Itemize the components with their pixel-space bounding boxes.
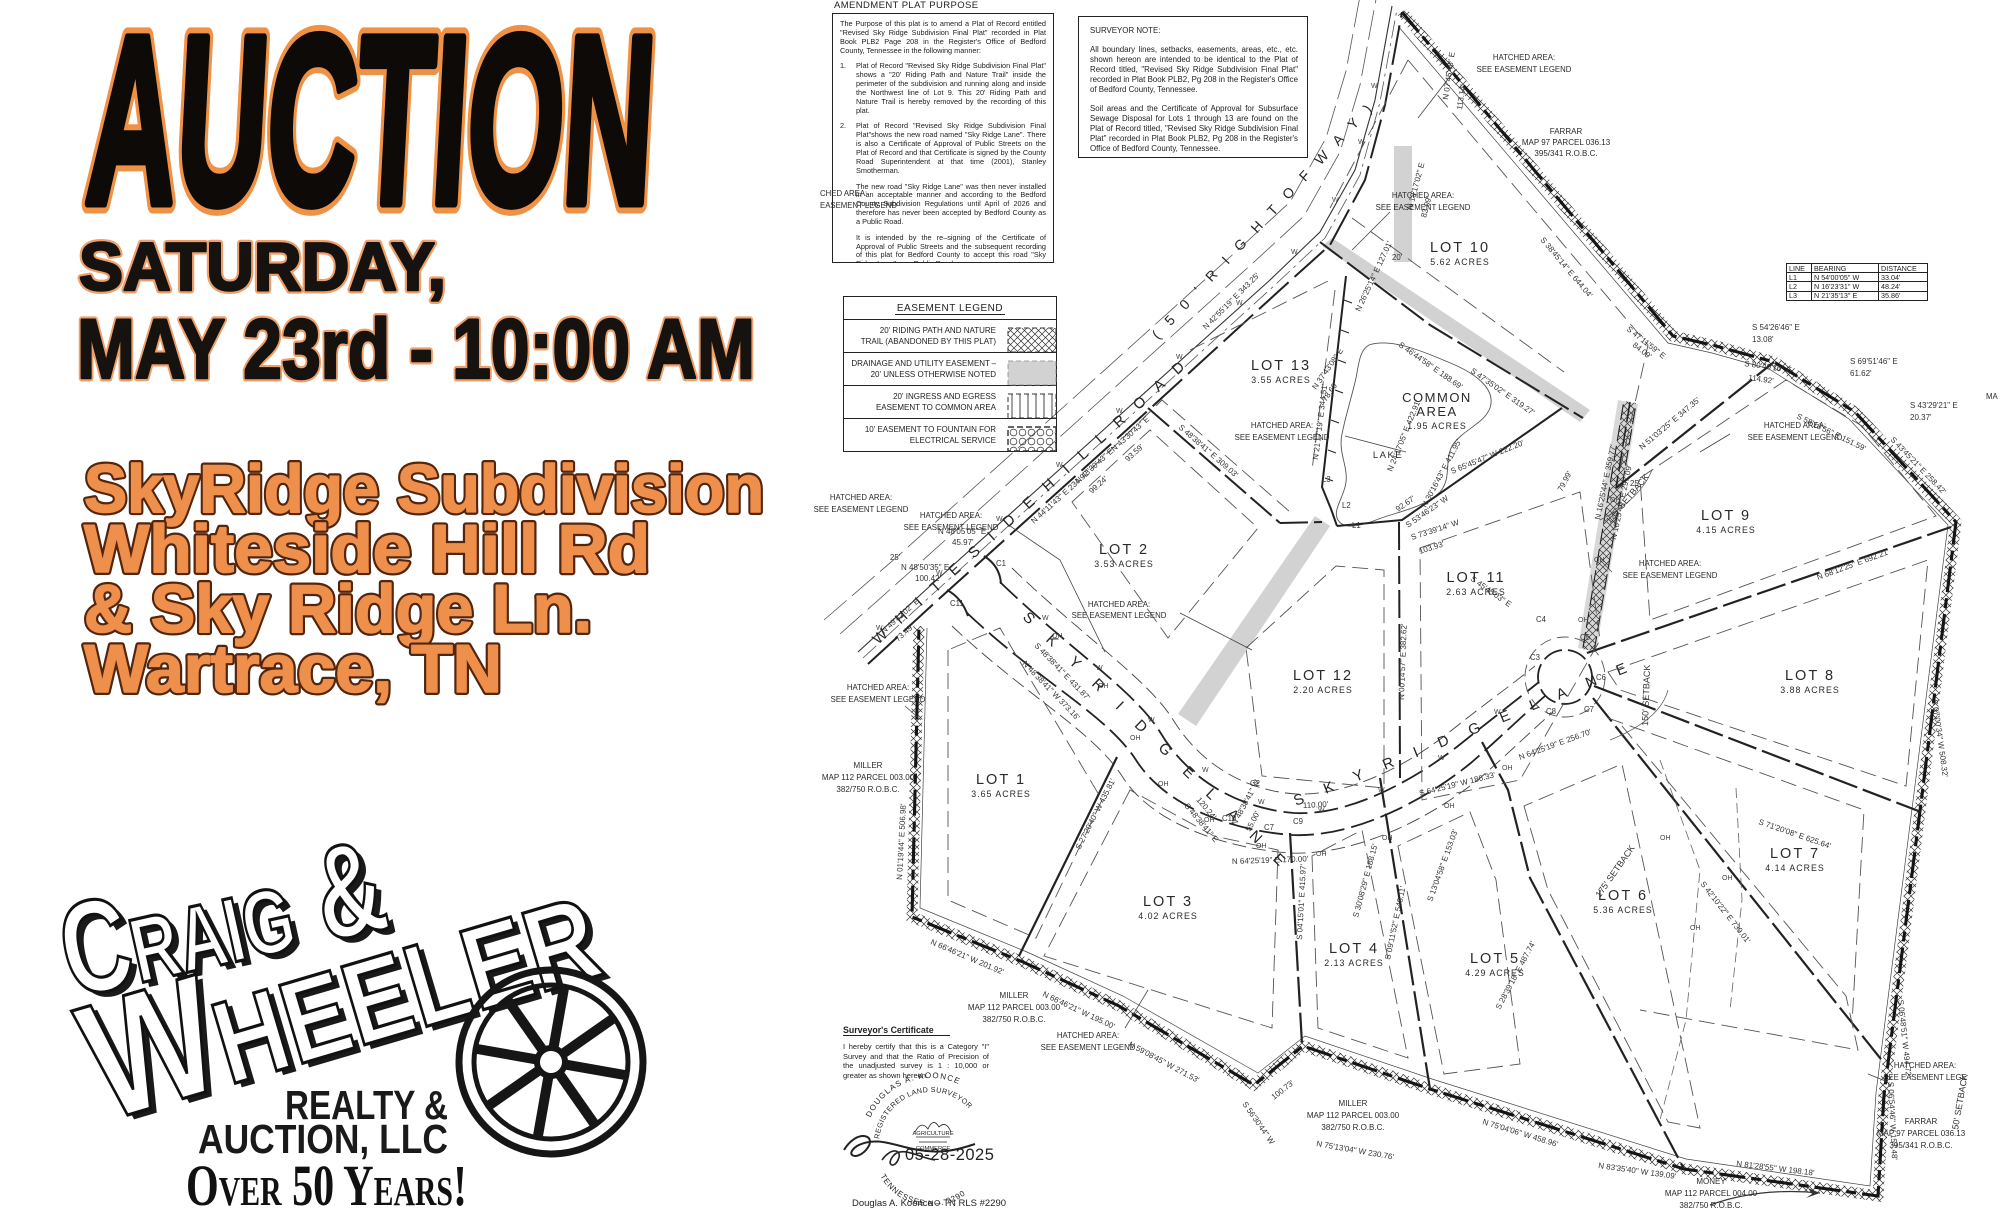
svg-text:MA: MA (1986, 392, 1998, 401)
svg-text:MAP 97 PARCEL 036.13: MAP 97 PARCEL 036.13 (1522, 138, 1611, 147)
svg-text:79.99': 79.99' (1556, 469, 1574, 493)
svg-text:05-28-2025: 05-28-2025 (905, 1146, 994, 1164)
svg-text:S 64'25'19" W 186.33': S 64'25'19" W 186.33' (1418, 770, 1496, 798)
svg-text:S 43'29'21" E: S 43'29'21" E (1910, 401, 1958, 410)
svg-text:S 69'51'46" E: S 69'51'46" E (1850, 357, 1898, 366)
svg-text:LOT 9: LOT 9 (1701, 508, 1751, 524)
svg-text:100.73': 100.73' (1270, 1078, 1296, 1101)
svg-text:MAP 112 PARCEL 003.00: MAP 112 PARCEL 003.00 (968, 1003, 1061, 1012)
svg-text:HATCHED AREA:: HATCHED AREA: (1057, 1031, 1119, 1040)
svg-text:150' SETBACK: 150' SETBACK (1640, 665, 1652, 727)
svg-text:61.62': 61.62' (1850, 369, 1872, 378)
svg-text:HATCHED AREA:: HATCHED AREA: (830, 493, 892, 502)
svg-text:C2: C2 (1250, 779, 1260, 788)
svg-text:S 27'20'40" W 435.81': S 27'20'40" W 435.81' (1074, 777, 1118, 851)
svg-text:S 06'54'46" W 157.48': S 06'54'46" W 157.48' (1886, 1082, 1899, 1161)
svg-text:AGRICULTURE: AGRICULTURE (912, 1131, 953, 1137)
svg-text:C10: C10 (1222, 814, 1237, 823)
svg-text:OH: OH (1660, 835, 1671, 842)
svg-text:LOT 13: LOT 13 (1251, 358, 1311, 374)
svg-text:S 30'08'29" E 188.15': S 30'08'29" E 188.15' (1351, 842, 1379, 918)
svg-text:4.02 ACRES: 4.02 ACRES (1138, 911, 1197, 921)
svg-text:C11: C11 (950, 599, 964, 608)
svg-text:MAP 112 PARCEL 003.00: MAP 112 PARCEL 003.00 (822, 773, 915, 782)
svg-text:MILLER: MILLER (1339, 1099, 1368, 1108)
svg-text:S 54'26'46" E: S 54'26'46" E (1752, 323, 1800, 332)
svg-text:114.92': 114.92' (1748, 373, 1775, 386)
svg-text:3.88 ACRES: 3.88 ACRES (1780, 685, 1839, 695)
svg-text:OH: OH (1722, 875, 1733, 882)
svg-text:LOT 4: LOT 4 (1329, 941, 1379, 957)
svg-text:S 56'30'44" W: S 56'30'44" W (1240, 1100, 1276, 1146)
svg-text:LOT 3: LOT 3 (1143, 894, 1193, 910)
svg-text:1.95 ACRES: 1.95 ACRES (1407, 421, 1466, 431)
svg-text:3.53 ACRES: 3.53 ACRES (1094, 559, 1153, 569)
svg-text:LOT 1: LOT 1 (976, 772, 1026, 788)
svg-text:OH: OH (1578, 617, 1589, 624)
svg-text:C7: C7 (1584, 705, 1594, 714)
svg-text:C3: C3 (1530, 653, 1540, 662)
svg-text:W: W (1371, 83, 1378, 90)
svg-text:2.20 ACRES: 2.20 ACRES (1293, 685, 1352, 695)
svg-text:5.62 ACRES: 5.62 ACRES (1430, 257, 1489, 267)
svg-text:N 01'19'44" E 506.98': N 01'19'44" E 506.98' (895, 803, 908, 880)
svg-text:N 75'13'04" W 230.76': N 75'13'04" W 230.76' (1316, 1139, 1395, 1162)
svg-text:5.36 ACRES: 5.36 ACRES (1593, 905, 1652, 915)
svg-text:OH: OH (1382, 835, 1393, 842)
svg-text:103.93': 103.93' (1418, 539, 1446, 556)
svg-text:SEE EASEMENT LEGEND: SEE EASEMENT LEGEND (1072, 611, 1167, 620)
svg-text:25': 25' (890, 553, 901, 562)
svg-text:N 51'03'25" E 347.35': N 51'03'25" E 347.35' (1638, 395, 1703, 451)
svg-text:382/750 R.O.B.C.: 382/750 R.O.B.C. (836, 785, 899, 794)
svg-text:S 04'15'01" E 415.97': S 04'15'01" E 415.97' (1295, 863, 1308, 940)
svg-text:FARRAR: FARRAR (1905, 1117, 1938, 1126)
svg-text:W: W (1332, 197, 1339, 204)
svg-text:3.55 ACRES: 3.55 ACRES (1251, 375, 1310, 385)
svg-text:S 48'38'41" E 309.03': S 48'38'41" E 309.03' (1177, 423, 1241, 480)
svg-text:OH: OH (1444, 803, 1455, 810)
svg-text:W: W (1438, 755, 1445, 762)
svg-text:OH: OH (1502, 765, 1513, 772)
svg-text:C8: C8 (1546, 707, 1556, 716)
svg-text:N 00'14'57" E 382.62': N 00'14'57" E 382.62' (1397, 623, 1409, 700)
svg-text:110.00': 110.00' (1303, 800, 1329, 810)
svg-text:W: W (1096, 665, 1103, 672)
svg-text:20.37': 20.37' (1910, 413, 1932, 422)
svg-text:W: W (1358, 139, 1365, 146)
svg-text:SEE EASEMENT LEGEND: SEE EASEMENT LEGEND (831, 695, 926, 704)
svg-text:LOT 7: LOT 7 (1770, 846, 1820, 862)
svg-text:W: W (1258, 799, 1265, 806)
svg-text:S 13'04'58" E 153.03': S 13'04'58" E 153.03' (1425, 828, 1460, 903)
svg-text:S K Y R I D G E L A N E: S K Y R I D G E L A N E (1019, 609, 1295, 876)
svg-text:C9: C9 (1293, 817, 1303, 826)
svg-text:LOT 5: LOT 5 (1470, 951, 1520, 967)
svg-text:HATCHED AREA:: HATCHED AREA: (1639, 559, 1701, 568)
svg-text:W: W (1202, 767, 1209, 774)
svg-text:C6: C6 (1596, 673, 1606, 682)
svg-text:MAP 112 PARCEL 003.00: MAP 112 PARCEL 003.00 (1307, 1111, 1400, 1120)
svg-text:SEE EASEMENT LEGEND: SEE EASEMENT LEGEND (1477, 65, 1572, 74)
svg-text:2.13 ACRES: 2.13 ACRES (1324, 958, 1383, 968)
svg-text:C1: C1 (996, 559, 1006, 568)
svg-text:100.42': 100.42' (915, 574, 941, 583)
svg-text:3.65 ACRES: 3.65 ACRES (971, 789, 1030, 799)
svg-text:FARRAR: FARRAR (1550, 127, 1583, 136)
svg-text:382/750 R.O.B.C.: 382/750 R.O.B.C. (1321, 1123, 1384, 1132)
svg-text:OH: OH (1690, 925, 1701, 932)
svg-text:L3: L3 (1322, 475, 1331, 484)
svg-text:SEE EASEMENT LEGEND: SEE EASEMENT LEGEND (1041, 1043, 1136, 1052)
svg-text:4.14 ACRES: 4.14 ACRES (1765, 863, 1824, 873)
svg-text:45.97': 45.97' (952, 538, 974, 547)
svg-text:OH: OH (1158, 781, 1169, 788)
svg-text:S 38'45'14" E 644.04': S 38'45'14" E 644.04' (1538, 236, 1594, 300)
svg-text:113.14': 113.14' (1455, 83, 1468, 110)
svg-text:N 64'25'19" E 256.70': N 64'25'19" E 256.70' (1518, 727, 1593, 762)
svg-text:W: W (1378, 787, 1385, 794)
svg-text:HATCHED AREA:: HATCHED AREA: (1493, 53, 1555, 62)
svg-text:LOT 8: LOT 8 (1785, 668, 1835, 684)
svg-text:L2: L2 (1342, 501, 1351, 510)
svg-text:N 64'25'19" E 170.00': N 64'25'19" E 170.00' (1232, 854, 1309, 866)
svg-text:S 80'40'16" E: S 80'40'16" E (1744, 359, 1793, 375)
svg-text:HATCHED AREA:: HATCHED AREA: (1251, 421, 1313, 430)
svg-text:C5: C5 (1580, 633, 1591, 642)
svg-text:HATCHED AREA:: HATCHED AREA: (1088, 600, 1150, 609)
svg-text:C4: C4 (1536, 615, 1547, 624)
svg-text:N 48'50'35" E: N 48'50'35" E (901, 563, 949, 572)
svg-text:LOT 12: LOT 12 (1293, 668, 1353, 684)
svg-text:13.08': 13.08' (1752, 335, 1774, 344)
svg-text:C7: C7 (1264, 823, 1274, 832)
svg-text:20': 20' (1392, 253, 1403, 262)
svg-text:SEE EASEMENT LEGEND: SEE EASEMENT LEGEND (814, 505, 909, 514)
svg-text:W: W (1291, 249, 1298, 256)
svg-text:MILLER: MILLER (1000, 991, 1029, 1000)
svg-text:L1: L1 (1352, 521, 1361, 530)
svg-text:N 48'05'05" E: N 48'05'05" E (938, 527, 986, 536)
svg-text:HATCHED AREA:: HATCHED AREA: (847, 683, 909, 692)
svg-text:LOT 2: LOT 2 (1099, 542, 1149, 558)
svg-text:SEE EASEMENT LEGEND: SEE EASEMENT LEGEND (1623, 571, 1718, 580)
svg-text:HATCHED AREA:: HATCHED AREA: (920, 511, 982, 520)
svg-text:4.15 ACRES: 4.15 ACRES (1696, 525, 1755, 535)
svg-text:395/341 R.O.B.C.: 395/341 R.O.B.C. (1534, 149, 1597, 158)
svg-text:MILLER: MILLER (854, 761, 883, 770)
svg-text:AREA: AREA (1416, 404, 1457, 419)
svg-text:LOT 10: LOT 10 (1430, 240, 1490, 256)
svg-text:93.59': 93.59' (1123, 442, 1145, 463)
svg-text:382/750 R.O.B.C.: 382/750 R.O.B.C. (982, 1015, 1045, 1024)
svg-text:OH: OH (1316, 851, 1327, 858)
